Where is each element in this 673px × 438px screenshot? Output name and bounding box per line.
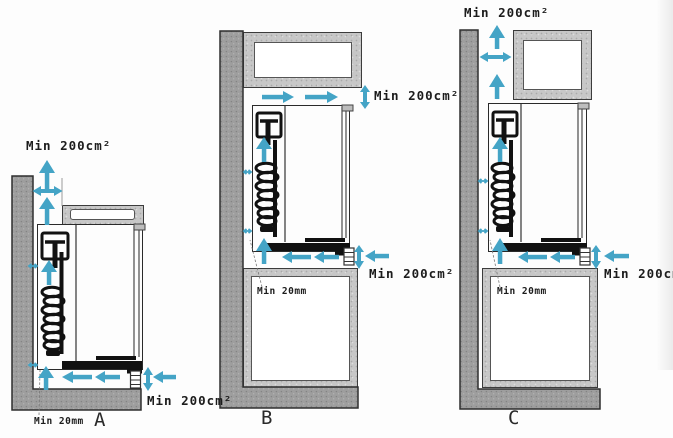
airflow-arrow-up-a-plinth: [38, 366, 54, 390]
clearance-label-b: Min 20mm: [257, 286, 307, 297]
base-bar-b: [267, 238, 350, 256]
gap-tick-b-upper: [244, 170, 251, 174]
hinge-bracket-a: [42, 233, 68, 268]
vent-grille-b: [344, 248, 354, 265]
gap-height-arrow-c-bottom: [591, 245, 601, 269]
gap-width-arrow-c: [480, 52, 512, 62]
vent-area-label-c-top: Min 200cm²: [464, 5, 549, 20]
airflow-arrow-left-c-intake: [604, 250, 629, 262]
airflow-arrow-left-c-2: [550, 251, 575, 263]
clearance-label-c: Min 20mm: [497, 286, 547, 297]
condenser-coil-b: [256, 140, 278, 237]
door-lines-c: [578, 103, 589, 238]
airflow-arrow-left-c-1: [518, 251, 547, 263]
clearance-label-a: Min 20mm: [34, 416, 84, 427]
diagram-letter-b: B: [261, 407, 272, 429]
gap-height-arrow-b-top: [360, 85, 370, 109]
vent-grille-a: [131, 371, 141, 388]
diagram-letter-a: A: [94, 409, 105, 431]
hinge-bracket-c: [493, 112, 517, 144]
airflow-arrow-up-a-exit: [39, 160, 55, 190]
diagram-lineart: [0, 0, 673, 438]
gap-tick-c-upper: [479, 179, 487, 183]
installation-diagram: Min 200cm² Min 200cm² Min 20mm A Min 200…: [0, 0, 673, 438]
vent-area-label-b-top: Min 200cm²: [374, 88, 459, 103]
airflow-arrow-left-b-intake: [365, 250, 389, 262]
gap-height-arrow-b-bottom: [354, 245, 364, 269]
gap-tick-c-lower: [479, 229, 487, 233]
base-bar-c: [503, 238, 587, 256]
gap-tick-b-lower: [244, 229, 251, 233]
vent-grille-c: [580, 248, 590, 265]
door-lines-b: [342, 105, 353, 238]
vent-area-label-a-top: Min 200cm²: [26, 138, 111, 153]
vent-area-label-c-bottom: Min 200cm²: [604, 266, 673, 281]
airflow-arrow-left-a-1: [62, 371, 92, 383]
airflow-arrow-right-b-2: [305, 91, 338, 103]
hinge-bracket-b: [257, 113, 281, 145]
airflow-arrow-up-c-top: [489, 74, 505, 99]
wall-floor-c: [460, 30, 600, 409]
diagram-letter-c: C: [508, 407, 519, 429]
condenser-coil-c: [492, 140, 514, 237]
door-lines-a: [134, 224, 145, 357]
airflow-arrow-left-b-1: [282, 251, 311, 263]
vent-area-label-b-bottom: Min 200cm²: [369, 266, 454, 281]
airflow-arrow-left-a-2: [95, 371, 120, 383]
gap-height-arrow-a: [143, 367, 153, 391]
vent-area-label-a-bottom: Min 200cm²: [147, 393, 232, 408]
airflow-arrow-up-b-plinth: [256, 238, 272, 264]
airflow-arrow-right-b-1: [262, 91, 294, 103]
airflow-arrow-left-a-intake: [153, 371, 176, 383]
wall-floor-b: [220, 31, 358, 408]
airflow-arrow-up-c-exit: [489, 25, 505, 49]
airflow-arrow-up-a-top: [39, 197, 55, 225]
